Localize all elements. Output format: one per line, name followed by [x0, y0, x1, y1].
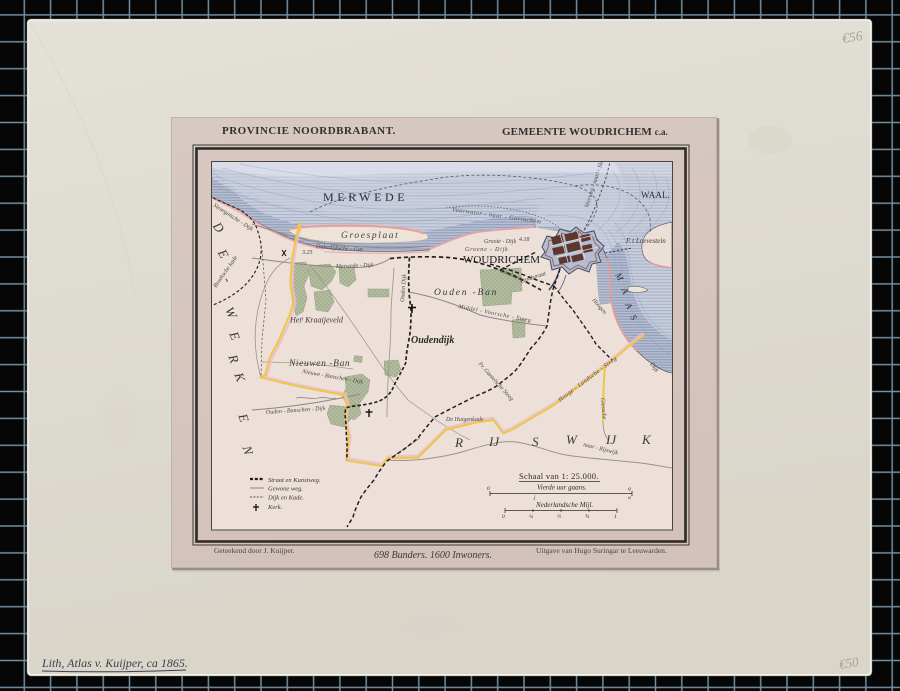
svg-text:S: S	[532, 434, 539, 449]
svg-text:Groene - Dijk: Groene - Dijk	[465, 247, 509, 253]
svg-text:F.t Loevestein: F.t Loevestein	[625, 237, 666, 245]
svg-text:4.18: 4.18	[519, 236, 530, 243]
svg-text:Groote - Dijk: Groote - Dijk	[484, 239, 516, 245]
svg-text:De Huigenkade: De Huigenkade	[445, 417, 484, 423]
svg-text:WAAL.: WAAL.	[641, 190, 670, 200]
svg-text:€56: €56	[841, 28, 864, 46]
svg-text:IJ: IJ	[605, 432, 617, 447]
svg-text:Lith, Atlas v. Kuijper, ca 186: Lith, Atlas v. Kuijper, ca 1865.	[41, 656, 188, 670]
svg-text:WOUDRICHEM: WOUDRICHEM	[463, 254, 540, 266]
svg-text:GEMEENTE WOUDRICHEM c.a.: GEMEENTE WOUDRICHEM c.a.	[502, 126, 668, 138]
svg-text:Oudendijk: Oudendijk	[411, 335, 454, 346]
svg-text:W: W	[566, 432, 578, 447]
svg-text:Uitgave van Hugo Suringar te L: Uitgave van Hugo Suringar te Leeuwarden.	[536, 546, 667, 555]
svg-text:Gewone weg.: Gewone weg.	[268, 486, 303, 493]
svg-text:0: 0	[487, 486, 490, 492]
svg-text:Nederlandsche Mijl.: Nederlandsche Mijl.	[535, 501, 593, 509]
svg-text:½: ½	[557, 513, 561, 520]
svg-text:R: R	[454, 435, 463, 450]
svg-text:Schaal van 1: 25.000.: Schaal van 1: 25.000.	[519, 471, 599, 481]
svg-text:Vierde uur gaans.: Vierde uur gaans.	[537, 484, 587, 492]
svg-text:Hetl Kraaijeveld: Hetl Kraaijeveld	[289, 316, 344, 325]
svg-text:Groesplaat: Groesplaat	[341, 231, 399, 241]
svg-text:MERWEDE: MERWEDE	[323, 190, 408, 204]
svg-text:PROVINCIE NOORDBRABANT.: PROVINCIE NOORDBRABANT.	[222, 125, 396, 137]
svg-text:698 Bunders. 1600 Inwoners.: 698 Bunders. 1600 Inwoners.	[374, 550, 492, 561]
svg-text:q: q	[628, 486, 631, 492]
svg-text:0: 0	[502, 514, 505, 520]
svg-text:¾: ¾	[585, 514, 589, 520]
svg-text:Geteekend door J. Kuijper.: Geteekend door J. Kuijper.	[214, 546, 295, 555]
svg-text:IJ: IJ	[488, 434, 500, 449]
svg-text:Kerk.: Kerk.	[267, 504, 283, 511]
svg-text:3.25: 3.25	[301, 250, 313, 256]
svg-text:Straat en Kunstweg.: Straat en Kunstweg.	[268, 477, 321, 484]
svg-text:Ouden -Ban: Ouden -Ban	[434, 288, 498, 298]
svg-text:K: K	[641, 432, 652, 447]
svg-text:Nieuwen -Ban: Nieuwen -Ban	[288, 359, 350, 369]
svg-text:1: 1	[614, 514, 617, 520]
svg-text:Dijk en Kade.: Dijk en Kade.	[267, 495, 304, 502]
svg-text:a: a	[628, 495, 631, 501]
svg-text:¼: ¼	[529, 514, 533, 520]
